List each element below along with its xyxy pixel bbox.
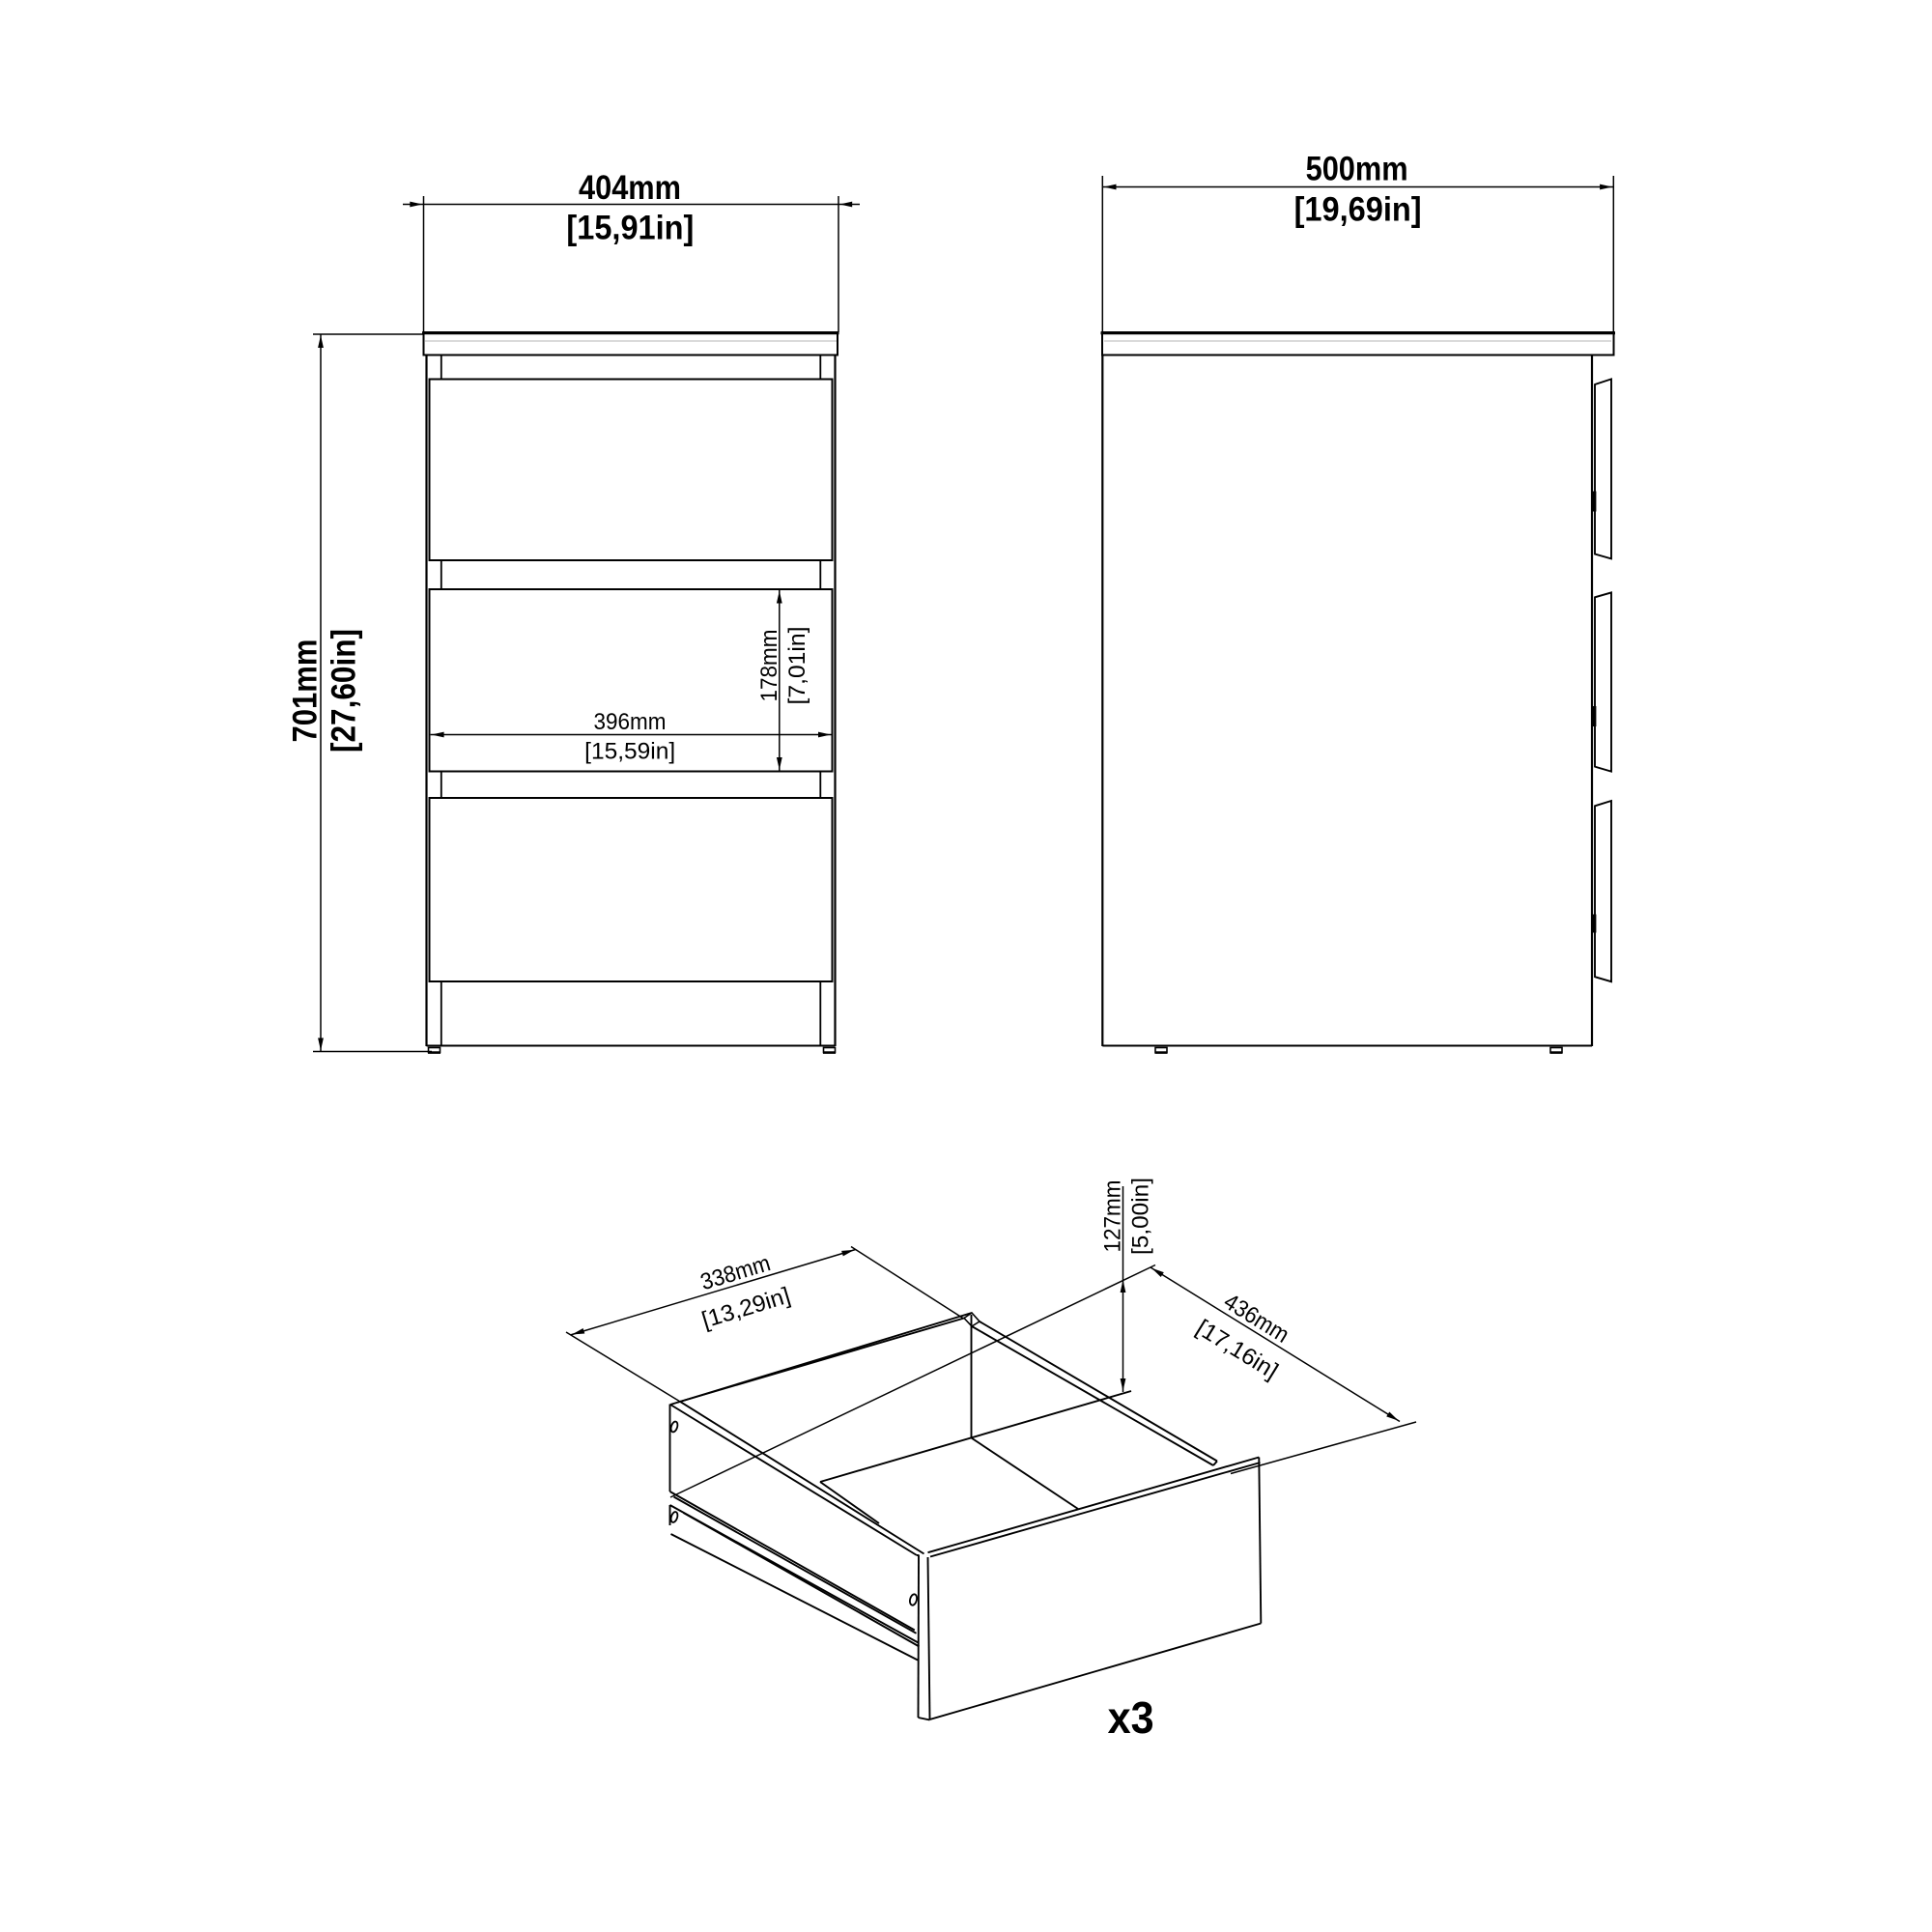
svg-text:[15,91in]: [15,91in] <box>566 209 694 247</box>
svg-text:127mm: 127mm <box>1100 1180 1126 1253</box>
svg-text:x3: x3 <box>1108 1692 1154 1743</box>
svg-text:178mm: 178mm <box>756 630 782 702</box>
svg-text:[7,01in]: [7,01in] <box>784 627 810 705</box>
svg-text:[27,60in]: [27,60in] <box>324 629 362 753</box>
svg-text:[5,00in]: [5,00in] <box>1128 1178 1154 1255</box>
svg-text:500mm: 500mm <box>1306 150 1408 188</box>
svg-text:[19,69in]: [19,69in] <box>1294 190 1422 229</box>
svg-text:396mm: 396mm <box>594 709 667 735</box>
svg-text:[15,59in]: [15,59in] <box>584 739 675 765</box>
svg-text:701mm: 701mm <box>285 639 324 743</box>
svg-text:404mm: 404mm <box>579 168 681 207</box>
